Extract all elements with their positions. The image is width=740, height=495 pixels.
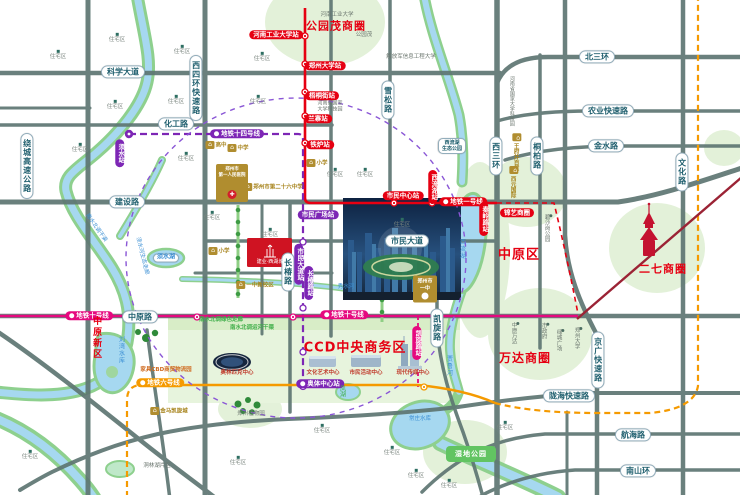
water-changzhuang-reservoir: 常庄水库: [409, 416, 431, 422]
poi-xiyuan-intl: 西元国际: [509, 166, 518, 198]
poi-xiaoxue-1: 小学: [306, 159, 327, 167]
poi-lvcheng-square: 绿城广场: [555, 329, 564, 351]
res-19: 住宅区: [230, 456, 247, 466]
road-hanghailu: 航海路: [615, 428, 651, 441]
green-corridor: 南水北调绿色走廊: [199, 317, 243, 323]
res-8: 住宅区: [254, 52, 271, 62]
poi-xiliuhu-eco-park: 西流湖 生态公园: [438, 138, 466, 154]
station-lanzhai: 兰寨站: [304, 114, 332, 123]
poi-zhengzhou-univ: 郑州大学: [573, 327, 582, 349]
poi-gongyuanmao: 公园茂: [356, 32, 373, 38]
res-10: 住宅区: [204, 211, 221, 221]
water-fenghu: 凤湖: [338, 385, 345, 397]
poi-bishagang-park: 碧沙岗公园: [543, 214, 552, 242]
road-zhongyuanlu: 中原路: [122, 310, 158, 323]
road-shimindadao: 市民大道: [385, 234, 429, 247]
station-shiminguangchang: 市民广场站: [298, 210, 339, 219]
poi-shidi-park: 湿地公园: [446, 446, 496, 462]
res-1: 住宅区: [109, 33, 126, 43]
poi-yizhong-new-campus: 一中新校区: [236, 281, 274, 289]
road-kaixuanlu: 凯旋路: [430, 309, 443, 348]
line10-label-east: 地铁十号线: [320, 310, 368, 319]
poi-gaozhong: 高中: [205, 141, 226, 149]
poi-shizhengfu: 市政府: [540, 323, 549, 340]
res-13: 住宅区: [357, 168, 374, 178]
station-xushui: 须水站: [115, 139, 124, 167]
road-nongye-expwy: 农业快速路: [582, 104, 634, 117]
water-xiushuihe: 秀水河: [338, 284, 355, 290]
station-tielu: 铁炉站: [306, 140, 334, 149]
res-16: 住宅区: [384, 446, 401, 456]
biz-wanda: 万达商圈: [499, 352, 551, 366]
poi-olympic-center: 奥林匹克中心: [220, 370, 253, 376]
res-12: 住宅区: [327, 168, 344, 178]
railway-line: [577, 177, 740, 319]
res-20: 住宅区: [497, 421, 514, 431]
poi-culture-art-center: 文化艺术中心: [306, 370, 339, 376]
lake-islet: [106, 366, 118, 378]
road-nanshanhuan: 南山环: [620, 464, 656, 477]
station-changchunlu: 长椿路站: [304, 266, 313, 300]
road-raocheng-expwy: 绕城高速公路: [20, 133, 33, 199]
ccd-render-image: [343, 198, 461, 300]
poi-no26-school: 郑州市第二十六中学: [243, 183, 303, 191]
res-6: 住宅区: [72, 143, 89, 153]
station-shimindadao: 市民大道站: [294, 244, 303, 285]
poi-xiaoxue-2: 小学: [208, 247, 229, 255]
project-parcel-label: 建业·西湖城: [257, 260, 284, 266]
road-kexuedadao: 科学大道: [101, 65, 145, 78]
road-xuesonglu: 雪松路: [381, 81, 394, 120]
res-2: 住宅区: [50, 50, 67, 60]
water-liuwan-reservoir: 刘湾水库: [117, 336, 124, 364]
water-xiliuhu: 西流湖: [458, 239, 465, 260]
poi-hospital: 郑州市 第一人民医院: [216, 164, 248, 202]
poi-zhongxue: 中学: [227, 144, 248, 152]
poi-jinma-kaixuan: 金马凯旋城: [150, 407, 188, 415]
station-zhengzhoudaxue: 郑州大学站: [305, 61, 346, 70]
road-wenhualu: 文化路: [675, 153, 688, 192]
res-7: 住宅区: [178, 152, 195, 162]
road-jinshuilu: 金水路: [588, 139, 624, 152]
res-4: 住宅区: [107, 100, 124, 110]
road-xisihuan-expwy: 西四环快速路: [189, 55, 202, 121]
road-jingguang-expwy: 京广快速路: [591, 332, 604, 389]
res-9: 住宅区: [250, 95, 267, 105]
station-xiliuhu: 西流湖站: [428, 170, 437, 204]
pond: [106, 461, 134, 477]
poi-pla-univ: 解放军信息工程大学: [386, 54, 436, 60]
poi-keji-park-2line: 河南省国家 大学科技园: [317, 101, 342, 113]
district-zhongyuanqu: 中原区: [498, 249, 540, 264]
biz-erqi: 二七商圈: [639, 264, 687, 277]
res-14: 住宅区: [394, 218, 411, 228]
poi-keji-park-v: 河南省国家大学科技园: [508, 76, 514, 126]
res-15: 住宅区: [314, 424, 331, 434]
poi-yizhong: 郑州市 一中: [413, 276, 437, 303]
line10-label-west: 地铁十号线: [65, 311, 113, 320]
road-xisanhuan: 西三环: [489, 137, 502, 176]
road-jianshelu: 建设路: [109, 195, 145, 208]
green-canal: 南水北调运河干渠: [230, 325, 274, 331]
poi-civic-activity-center: 市民活动中心: [349, 370, 382, 376]
poi-botanical-garden: 郑州植物园: [237, 411, 265, 417]
station-kaixuanlu: 凯旋路站: [412, 326, 421, 360]
poi-henan-univ-tech: 河南工业大学: [320, 12, 353, 18]
res-11: 住宅区: [262, 228, 279, 238]
res-21: 住宅区: [22, 450, 39, 460]
road-beisanhuan: 北三环: [579, 50, 615, 63]
road-tongbailu: 桐柏路: [530, 137, 543, 176]
poi-media-center: 现代传媒中心: [396, 370, 429, 376]
line6-label: 地铁六号线: [136, 378, 184, 387]
water-xushuihu: 须水湖: [153, 254, 179, 263]
station-shiminzhongxin: 市民中心站: [383, 191, 424, 200]
district-zhongyuanxinqu: 中原新区: [91, 316, 101, 360]
poi-zhongyuan-wanda: 中原万达: [510, 322, 519, 344]
res-5: 住宅区: [168, 95, 185, 105]
line14-label: 地铁十四号线: [210, 129, 264, 138]
poi-donglinhu: 洞林湖片区: [143, 463, 171, 469]
ccd-title: CCD中央商务区: [304, 342, 407, 357]
station-henangongye: 河南工业大学站: [249, 30, 303, 39]
road-huagonglu: 化工路: [158, 117, 194, 130]
res-3: 住宅区: [174, 45, 191, 55]
water-jialuhe: 贾鲁河: [445, 356, 452, 377]
res-17: 住宅区: [408, 469, 425, 479]
res-18: 住宅区: [441, 479, 458, 489]
city-transit-map: 科学大道化工路建设路北三环农业快速路金水路中原路市民大道陇海快速路航海路南山环西…: [0, 0, 740, 495]
road-longhai-expwy: 陇海快速路: [543, 389, 595, 402]
poi-jiaju-cbd: 家具CBD商贸物流园: [140, 367, 191, 373]
biz-jinyi: 锦艺商圈: [500, 208, 534, 217]
station-qinlinglu: 秦岭路站: [479, 202, 488, 236]
